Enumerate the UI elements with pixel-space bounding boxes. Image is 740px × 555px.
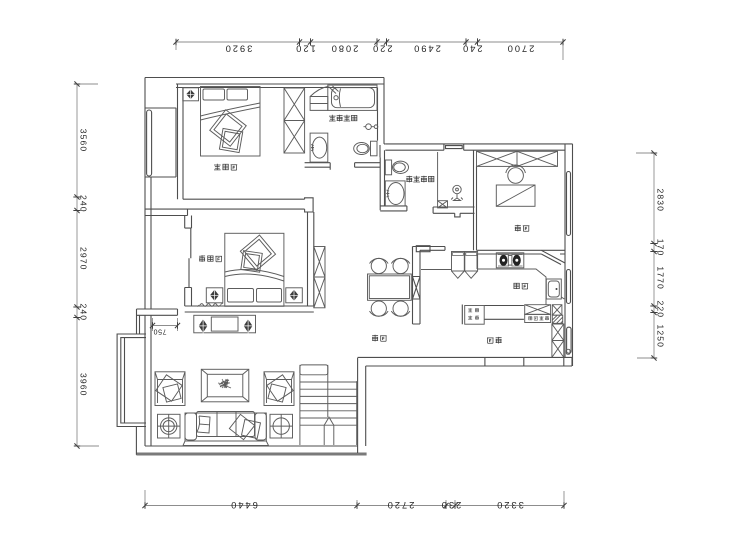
svg-text:240: 240: [79, 195, 89, 213]
svg-text:2970: 2970: [79, 247, 89, 271]
svg-text:750: 750: [153, 328, 166, 335]
svg-text:220: 220: [371, 44, 393, 54]
svg-text:6440: 6440: [229, 500, 258, 510]
svg-text:3560: 3560: [79, 129, 89, 153]
svg-text:1770: 1770: [656, 266, 666, 290]
svg-text:240: 240: [461, 44, 483, 54]
svg-text:3320: 3320: [495, 500, 524, 510]
svg-text:2490: 2490: [412, 44, 441, 54]
svg-text:2720: 2720: [386, 500, 415, 510]
svg-text:2700: 2700: [506, 44, 535, 54]
svg-text:220: 220: [656, 300, 666, 318]
svg-text:2830: 2830: [656, 189, 666, 213]
svg-text:1250: 1250: [656, 325, 666, 349]
svg-text:170: 170: [656, 239, 666, 257]
svg-text:230: 230: [440, 500, 462, 510]
svg-text:3920: 3920: [224, 44, 253, 54]
svg-text:120: 120: [294, 44, 316, 54]
svg-text:2080: 2080: [330, 44, 359, 54]
svg-text:3960: 3960: [79, 373, 89, 397]
svg-text:240: 240: [79, 303, 89, 321]
